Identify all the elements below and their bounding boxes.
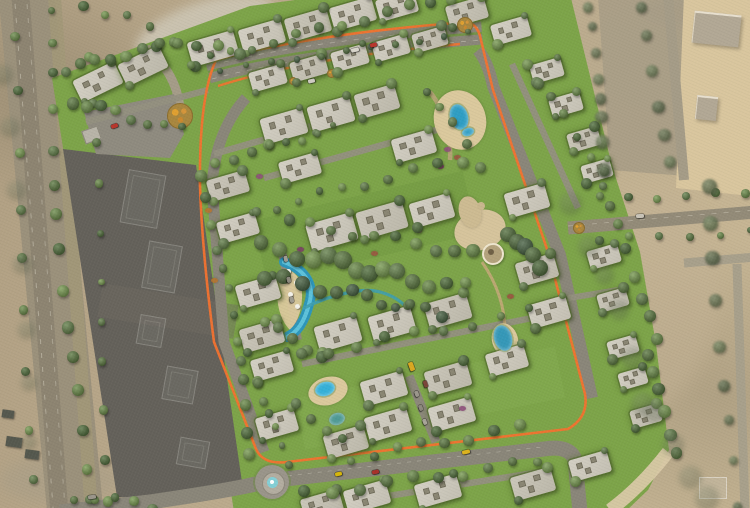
aerial-masterplan-view xyxy=(0,0,750,508)
vignette-overlay xyxy=(0,0,750,508)
